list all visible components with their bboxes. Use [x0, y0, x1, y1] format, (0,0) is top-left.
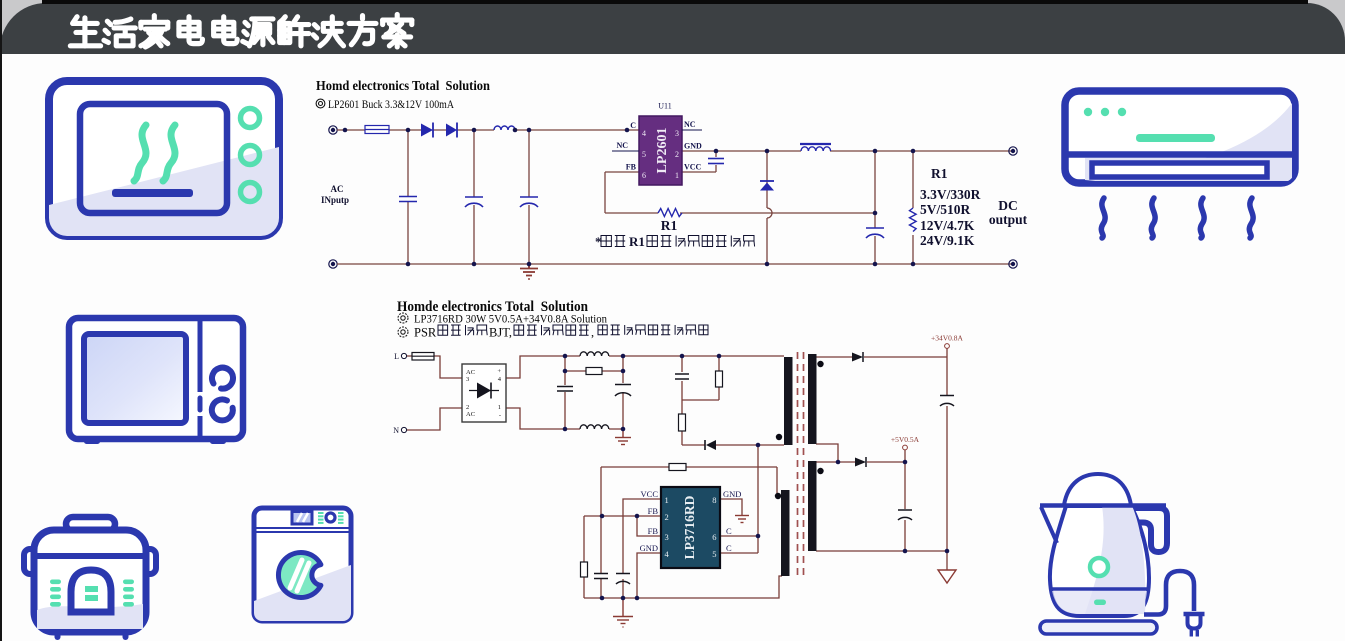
svg-text:1: 1: [665, 495, 669, 505]
svg-text:output: output: [989, 212, 1028, 227]
svg-text:DC: DC: [998, 198, 1018, 213]
svg-text:LP2601 Buck 3.3&12V 100mA: LP2601 Buck 3.3&12V 100mA: [328, 99, 455, 111]
svg-text:8: 8: [712, 495, 716, 505]
svg-text:GND: GND: [640, 543, 658, 553]
svg-text:-: -: [499, 412, 501, 419]
svg-text:Homd electronics Total Soluti: Homd electronics Total Solution: [316, 78, 490, 93]
svg-text:3: 3: [665, 532, 669, 542]
svg-text:AC: AC: [466, 369, 475, 376]
svg-text:NC: NC: [616, 141, 628, 150]
svg-text:2: 2: [675, 150, 679, 159]
svg-text:U11: U11: [658, 102, 671, 111]
svg-text:R1: R1: [629, 234, 645, 249]
svg-text:1: 1: [498, 404, 501, 411]
svg-text:PSR: PSR: [414, 326, 437, 340]
svg-text:2: 2: [466, 404, 469, 411]
svg-text:L: L: [394, 352, 399, 361]
svg-text:LP3716RD 30W 5V0.5A+34V0.8A So: LP3716RD 30W 5V0.5A+34V0.8A Solution: [414, 312, 607, 326]
svg-text:C: C: [726, 526, 732, 536]
svg-text:+34V0.8A: +34V0.8A: [931, 334, 964, 343]
svg-text:2: 2: [665, 512, 669, 522]
svg-text:BJT,: BJT,: [489, 326, 512, 340]
svg-text:R1: R1: [931, 166, 948, 181]
svg-text:FB: FB: [626, 163, 637, 172]
svg-text:1: 1: [675, 171, 679, 180]
svg-text:FB: FB: [648, 526, 659, 536]
svg-text:AC: AC: [331, 184, 344, 194]
svg-text:6: 6: [642, 171, 646, 180]
svg-text:6: 6: [712, 532, 716, 542]
svg-text:C: C: [726, 543, 732, 553]
svg-text:VCC: VCC: [641, 489, 659, 499]
svg-text:5V/510R: 5V/510R: [920, 202, 971, 217]
svg-text:FB: FB: [648, 506, 659, 516]
svg-text:LP3716RD: LP3716RD: [682, 495, 697, 559]
svg-text:12V/4.7K: 12V/4.7K: [920, 218, 975, 233]
svg-text:+5V0.5A: +5V0.5A: [891, 435, 920, 444]
svg-text:4: 4: [642, 129, 646, 138]
svg-text:AC: AC: [466, 411, 475, 418]
svg-text:LP2601: LP2601: [655, 128, 670, 174]
svg-text:+: +: [497, 368, 501, 375]
svg-text:R1: R1: [661, 218, 678, 233]
svg-text:5: 5: [642, 150, 646, 159]
svg-text:NC: NC: [684, 120, 696, 129]
svg-text:,: ,: [591, 326, 594, 340]
svg-text:5: 5: [712, 549, 716, 559]
svg-text:INputp: INputp: [321, 195, 349, 205]
svg-text:VCC: VCC: [684, 163, 702, 172]
svg-text:3: 3: [466, 376, 469, 383]
svg-text:GND: GND: [723, 489, 741, 499]
svg-text:C: C: [630, 121, 636, 130]
svg-text:3.3V/330R: 3.3V/330R: [920, 187, 981, 202]
svg-text:24V/9.1K: 24V/9.1K: [920, 233, 975, 248]
svg-text:N: N: [393, 426, 399, 435]
svg-text:3: 3: [675, 129, 679, 138]
svg-text:GND: GND: [684, 142, 702, 151]
